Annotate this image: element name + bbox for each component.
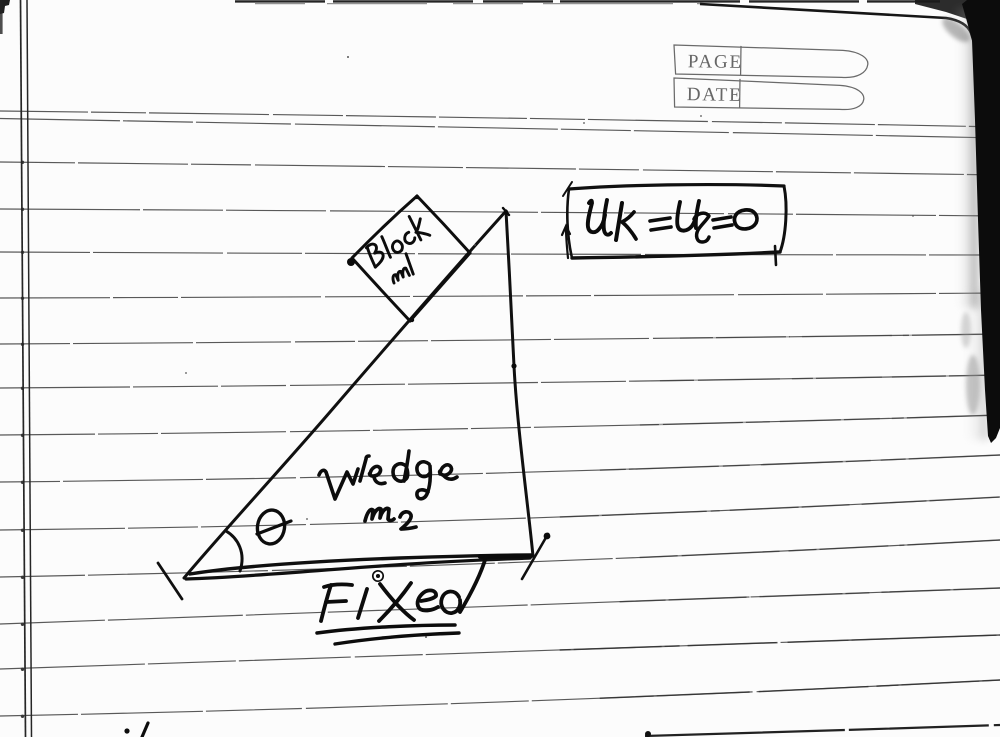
svg-text:PAGE: PAGE <box>688 51 743 73</box>
svg-text:DATE: DATE <box>687 84 743 106</box>
